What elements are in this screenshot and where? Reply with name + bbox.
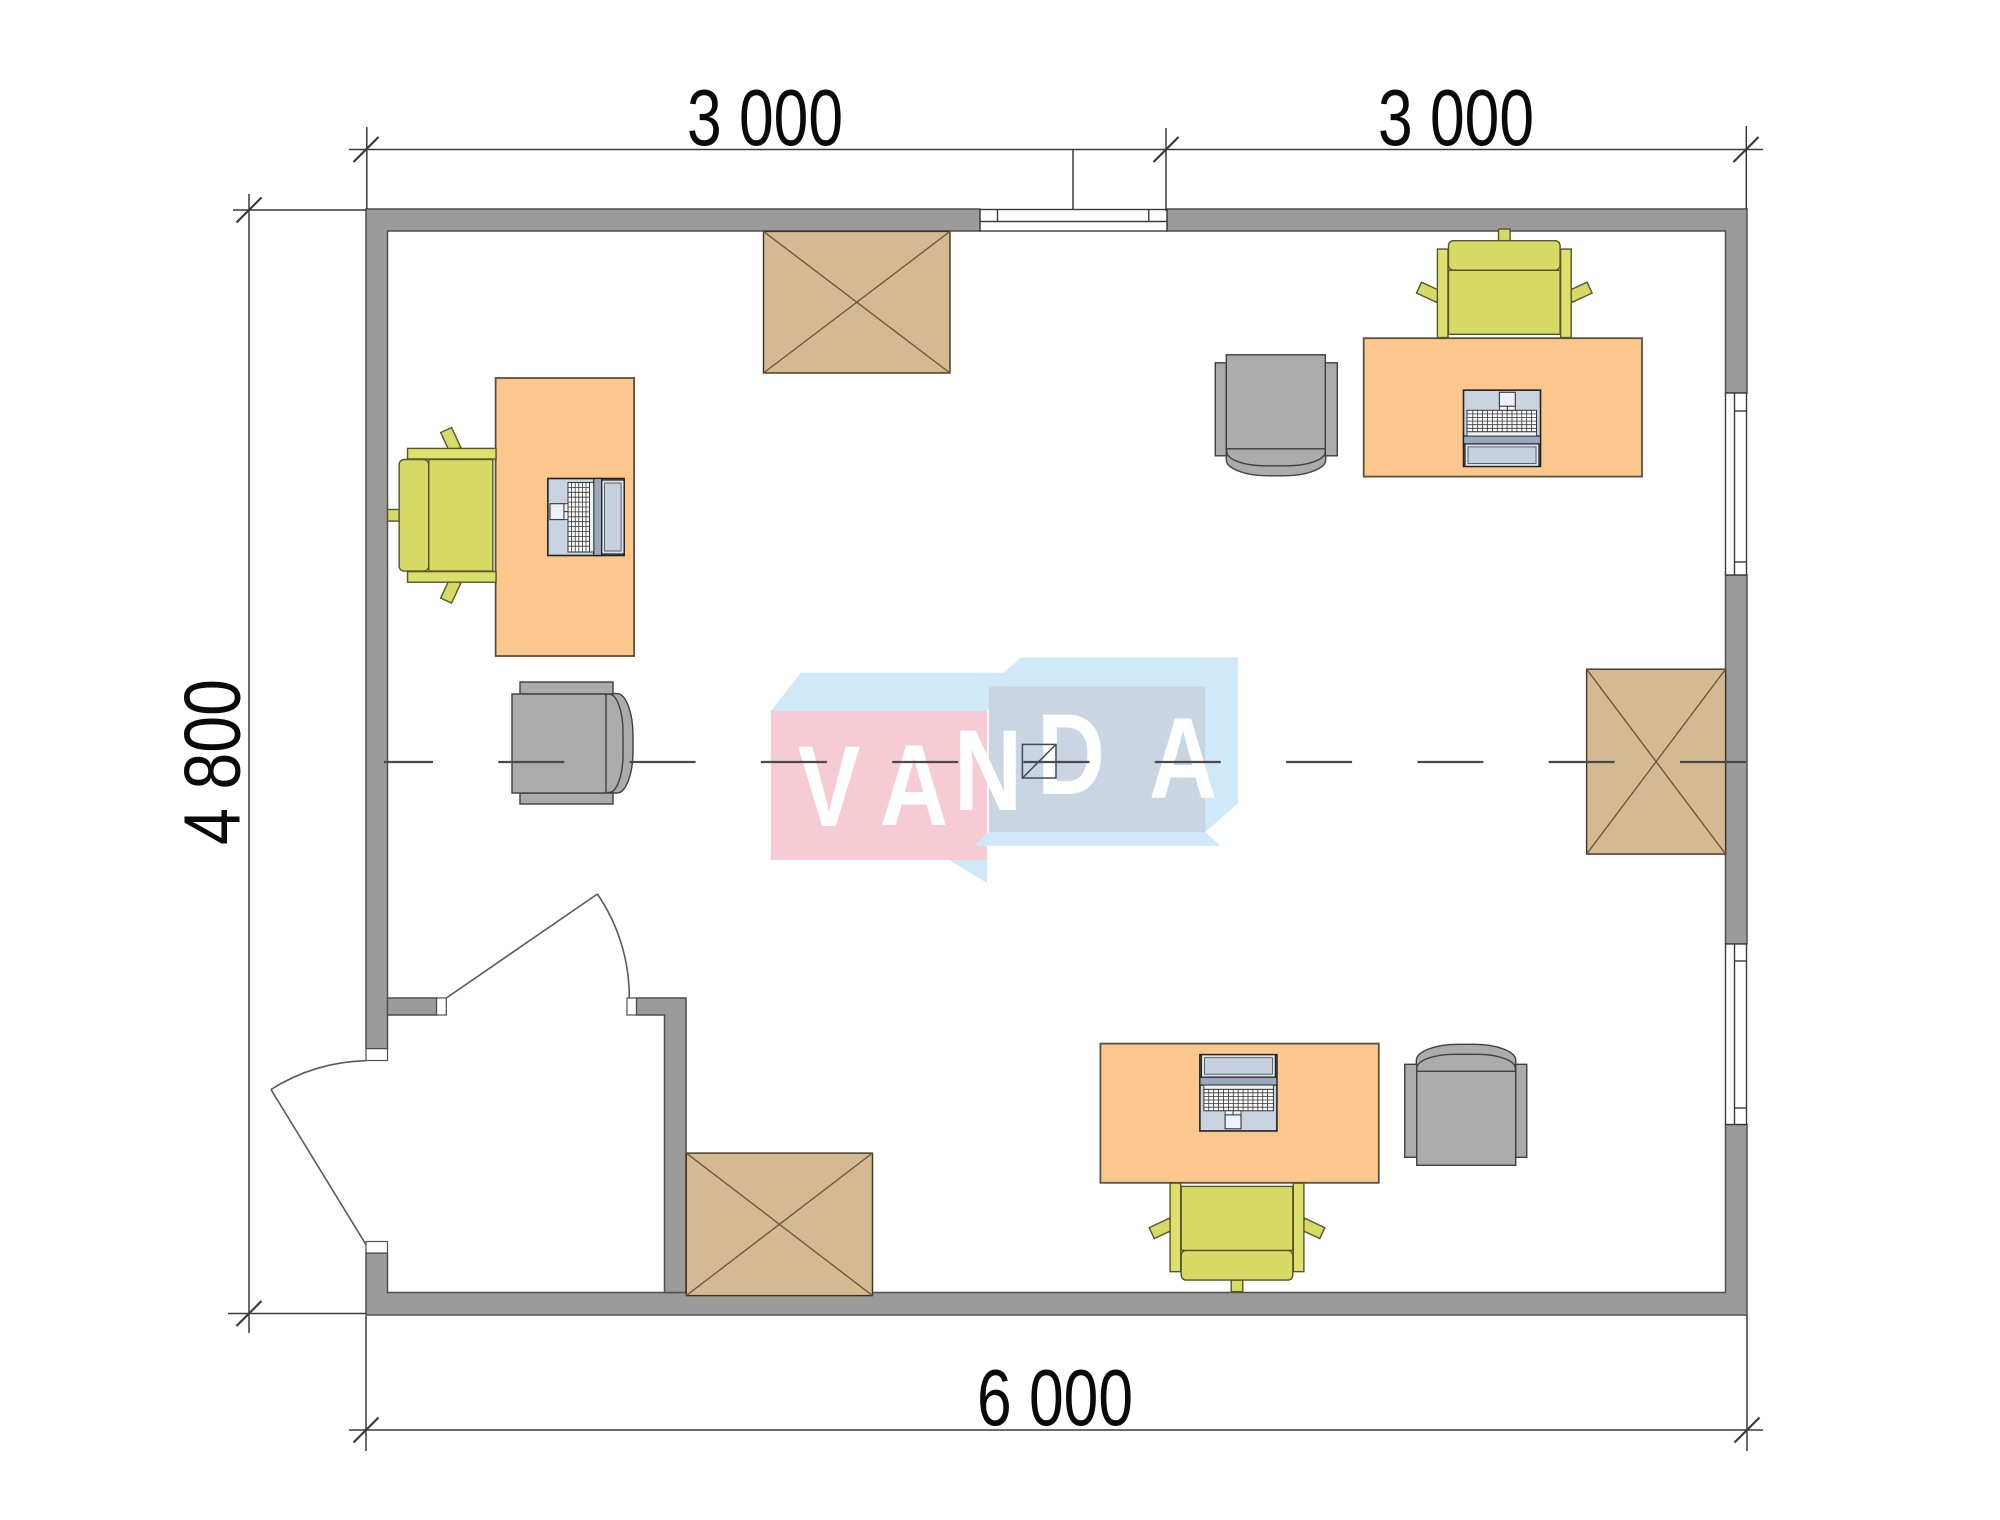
- svg-text:N: N: [954, 707, 1022, 835]
- svg-text:A: A: [1149, 695, 1217, 823]
- svg-text:4 800: 4 800: [168, 679, 257, 845]
- svg-text:A: A: [880, 722, 948, 850]
- svg-text:3 000: 3 000: [687, 73, 843, 162]
- svg-text:6 000: 6 000: [977, 1353, 1133, 1442]
- svg-text:D: D: [1037, 691, 1105, 819]
- svg-text:3 000: 3 000: [1378, 73, 1534, 162]
- svg-text:V: V: [798, 723, 861, 851]
